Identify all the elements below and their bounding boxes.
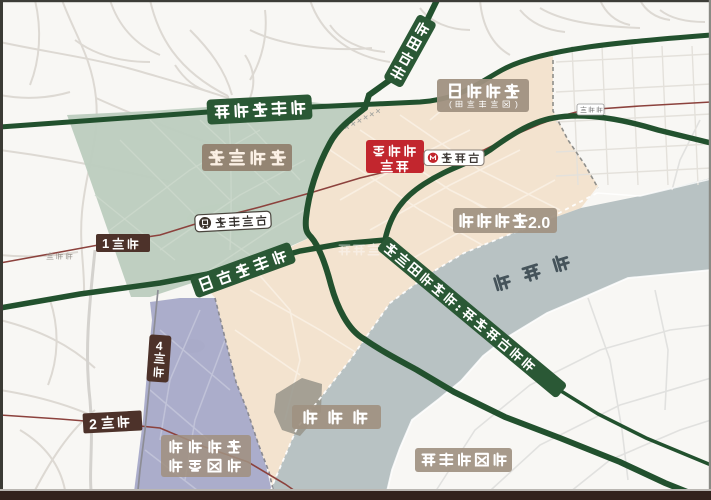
svg-text:2.0: 2.0 (528, 215, 550, 232)
svg-text:4: 4 (155, 339, 163, 353)
svg-text:2: 2 (89, 416, 98, 432)
svg-text:(: ( (449, 99, 452, 109)
svg-text:1: 1 (102, 236, 109, 251)
svg-text:): ) (515, 99, 518, 109)
